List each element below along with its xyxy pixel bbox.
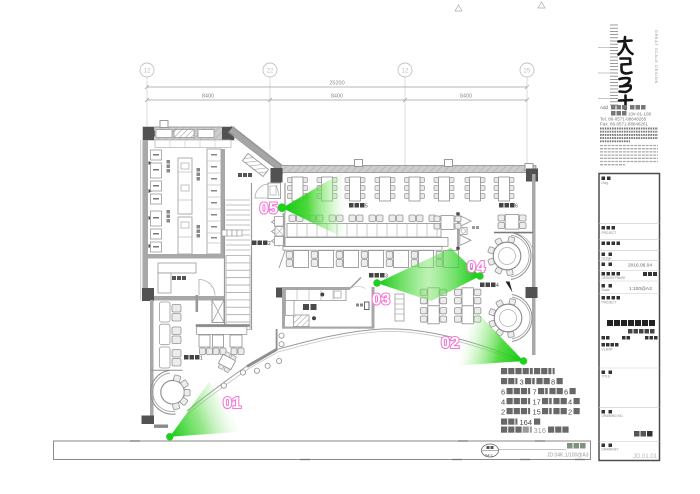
svg-text:15: 15 [533,408,541,417]
svg-text:8400: 8400 [460,94,472,100]
svg-text:Scale: Scale [602,288,610,292]
svg-text:03: 03 [372,291,391,308]
svg-text:6: 6 [501,388,505,397]
svg-text:04-1: 04-1 [485,453,494,458]
svg-text:8: 8 [551,378,555,387]
svg-text:164: 164 [520,418,533,427]
svg-text:DRAWN BY: DRAWN BY [602,448,620,452]
svg-text:2: 2 [501,408,505,417]
svg-text:PROJECT: PROJECT [602,231,617,235]
svg-text:4: 4 [501,398,505,407]
svg-text:TITLE: TITLE [602,375,611,379]
svg-text:Design: Design [602,257,612,261]
svg-text:25: 25 [524,69,531,75]
svg-text:1: 1 [200,356,203,362]
svg-text:2: 2 [568,408,572,417]
svg-text:17: 17 [533,398,541,407]
svg-text:DRAWING NO.: DRAWING NO. [602,414,624,418]
svg-text:GREAT SCALE DESIGN: GREAT SCALE DESIGN [654,30,658,84]
svg-text:1:100@A3: 1:100@A3 [629,286,652,292]
svg-text:4: 4 [496,283,499,289]
svg-text:6: 6 [564,388,568,397]
svg-text:8400: 8400 [202,94,214,100]
svg-text:3: 3 [520,378,524,387]
svg-text:25200: 25200 [329,81,344,87]
svg-text:05: 05 [260,200,279,217]
svg-text:2016.06.04: 2016.06.04 [628,263,652,269]
svg-text:02: 02 [441,335,460,352]
svg-text:4: 4 [568,398,572,407]
svg-text:12: 12 [144,69,151,75]
svg-text:22: 22 [267,69,274,75]
svg-text:JD.01.01: JD.01.01 [633,454,658,460]
svg-text:12: 12 [402,69,409,75]
svg-text:2: 2 [268,241,271,247]
svg-text:8400: 8400 [331,94,343,100]
svg-text:6: 6 [515,204,518,210]
svg-text:7: 7 [533,388,537,397]
svg-text:5: 5 [365,204,368,210]
svg-text:04: 04 [467,259,486,276]
svg-text:CLIENT: CLIENT [602,348,613,352]
svg-text:Fax. 86-0571-88848261: Fax. 86-0571-88848261 [600,122,649,127]
svg-text:316: 316 [534,426,547,435]
svg-text:PROJECT: PROJECT [602,301,617,305]
svg-text:JD.04K.1/100@A3: JD.04K.1/100@A3 [547,453,589,459]
svg-text:01: 01 [223,395,242,412]
svg-text:Dwg.: Dwg. [602,181,609,185]
svg-text:Add: Add [600,105,609,110]
svg-text:DESIGN PHASE: DESIGN PHASE [602,276,626,280]
